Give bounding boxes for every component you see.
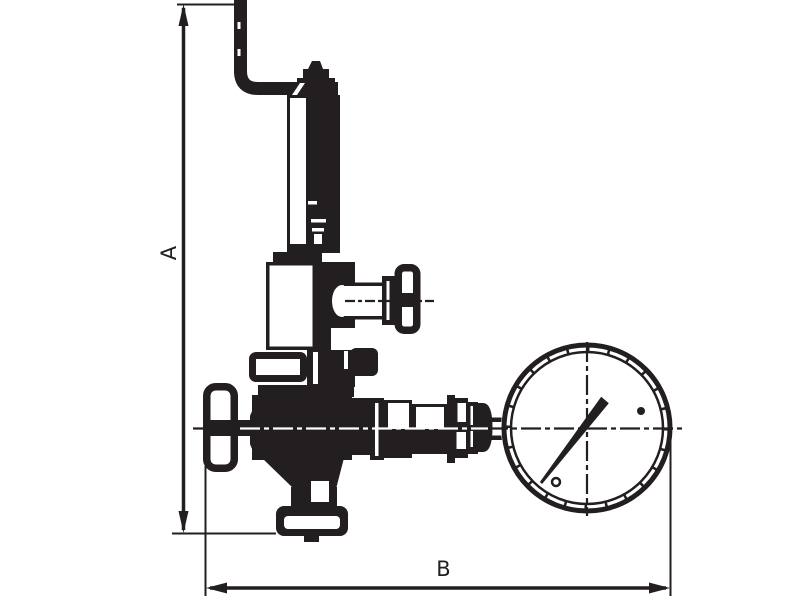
arrow-left-icon: [206, 583, 227, 594]
arrow-right-icon: [649, 583, 670, 594]
arrow-down-icon: [179, 511, 189, 533]
drawing-canvas: A B: [0, 0, 800, 598]
valve-body-icon: [238, 385, 372, 542]
dimension-a-label: A: [157, 245, 181, 260]
valve-technical-drawing: A B: [0, 0, 800, 598]
spring-bonnet-icon: [289, 95, 340, 253]
mid-section-icon: [249, 348, 378, 387]
dimension-b-label: B: [436, 557, 450, 581]
arrow-up-icon: [179, 4, 189, 26]
